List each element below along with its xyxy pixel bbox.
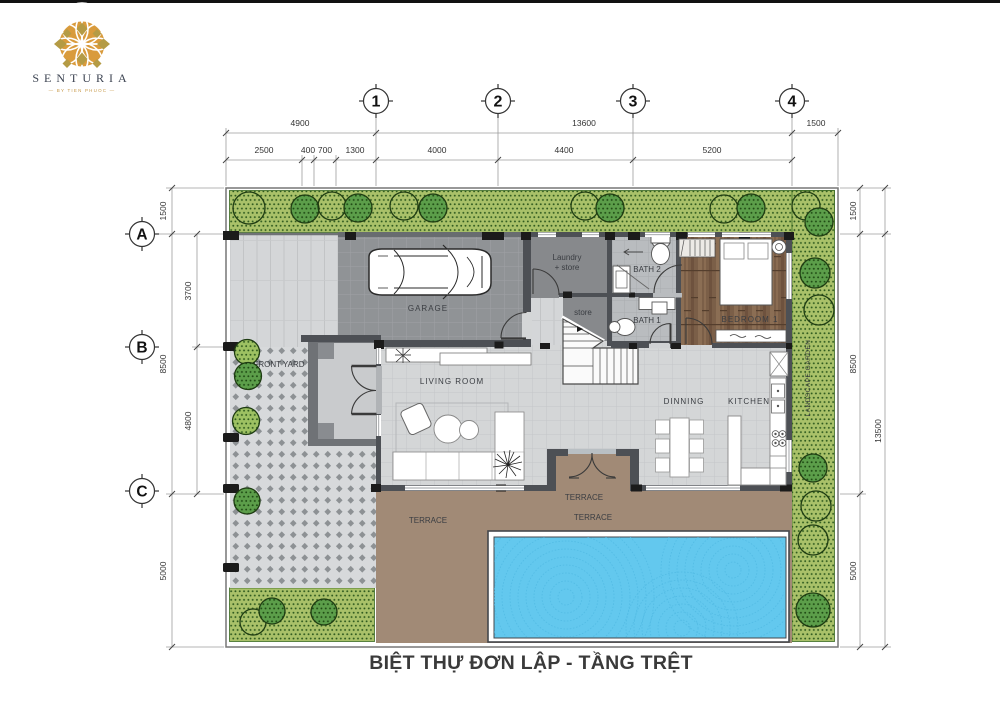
svg-text:2500: 2500 (255, 145, 274, 155)
svg-text:5200: 5200 (703, 145, 722, 155)
svg-text:4800: 4800 (183, 411, 193, 430)
svg-text:B: B (136, 340, 147, 357)
svg-text:BATH 2: BATH 2 (633, 265, 661, 274)
svg-text:KITCHEN: KITCHEN (728, 397, 770, 406)
svg-text:8500: 8500 (158, 354, 168, 373)
svg-text:400: 400 (301, 145, 315, 155)
svg-text:4000: 4000 (428, 145, 447, 155)
svg-text:1500: 1500 (807, 118, 826, 128)
svg-text:store: store (574, 308, 592, 317)
svg-text:1: 1 (372, 94, 381, 111)
svg-text:13600: 13600 (572, 118, 596, 128)
svg-text:LANDSCAPE GARDEN: LANDSCAPE GARDEN (805, 340, 812, 417)
svg-text:3: 3 (629, 94, 638, 111)
svg-text:8500: 8500 (848, 354, 858, 373)
svg-text:5000: 5000 (848, 561, 858, 580)
svg-text:BEDROOM 1: BEDROOM 1 (721, 315, 778, 324)
svg-text:FRONT YARD: FRONT YARD (253, 360, 304, 369)
svg-text:4400: 4400 (555, 145, 574, 155)
svg-text:1500: 1500 (158, 201, 168, 220)
svg-text:LIVING ROOM: LIVING ROOM (420, 377, 484, 386)
svg-text:— BY TIEN PHUOC —: — BY TIEN PHUOC — (49, 88, 116, 93)
svg-text:TERRACE: TERRACE (409, 516, 447, 525)
svg-text:TERRACE: TERRACE (574, 513, 612, 522)
svg-text:3700: 3700 (183, 281, 193, 300)
svg-text:SENTURIA: SENTURIA (32, 71, 131, 85)
svg-text:A: A (136, 227, 147, 244)
svg-text:4: 4 (788, 94, 797, 111)
svg-text:700: 700 (318, 145, 332, 155)
svg-text:TERRACE: TERRACE (565, 493, 603, 502)
svg-text:2: 2 (494, 94, 503, 111)
svg-text:5000: 5000 (158, 561, 168, 580)
svg-text:13500: 13500 (873, 419, 883, 443)
svg-text:1300: 1300 (346, 145, 365, 155)
svg-text:DINNING: DINNING (664, 397, 705, 406)
svg-text:4900: 4900 (291, 118, 310, 128)
svg-text:C: C (136, 484, 147, 501)
svg-text:BATH 1: BATH 1 (633, 316, 661, 325)
svg-text:GARAGE: GARAGE (408, 304, 448, 313)
svg-text:Laundry: Laundry (553, 253, 582, 262)
svg-text:BIỆT THỰ ĐƠN LẬP - TẦNG TRỆT: BIỆT THỰ ĐƠN LẬP - TẦNG TRỆT (369, 650, 693, 674)
svg-text:1500: 1500 (848, 201, 858, 220)
svg-text:+ store: + store (555, 263, 580, 272)
